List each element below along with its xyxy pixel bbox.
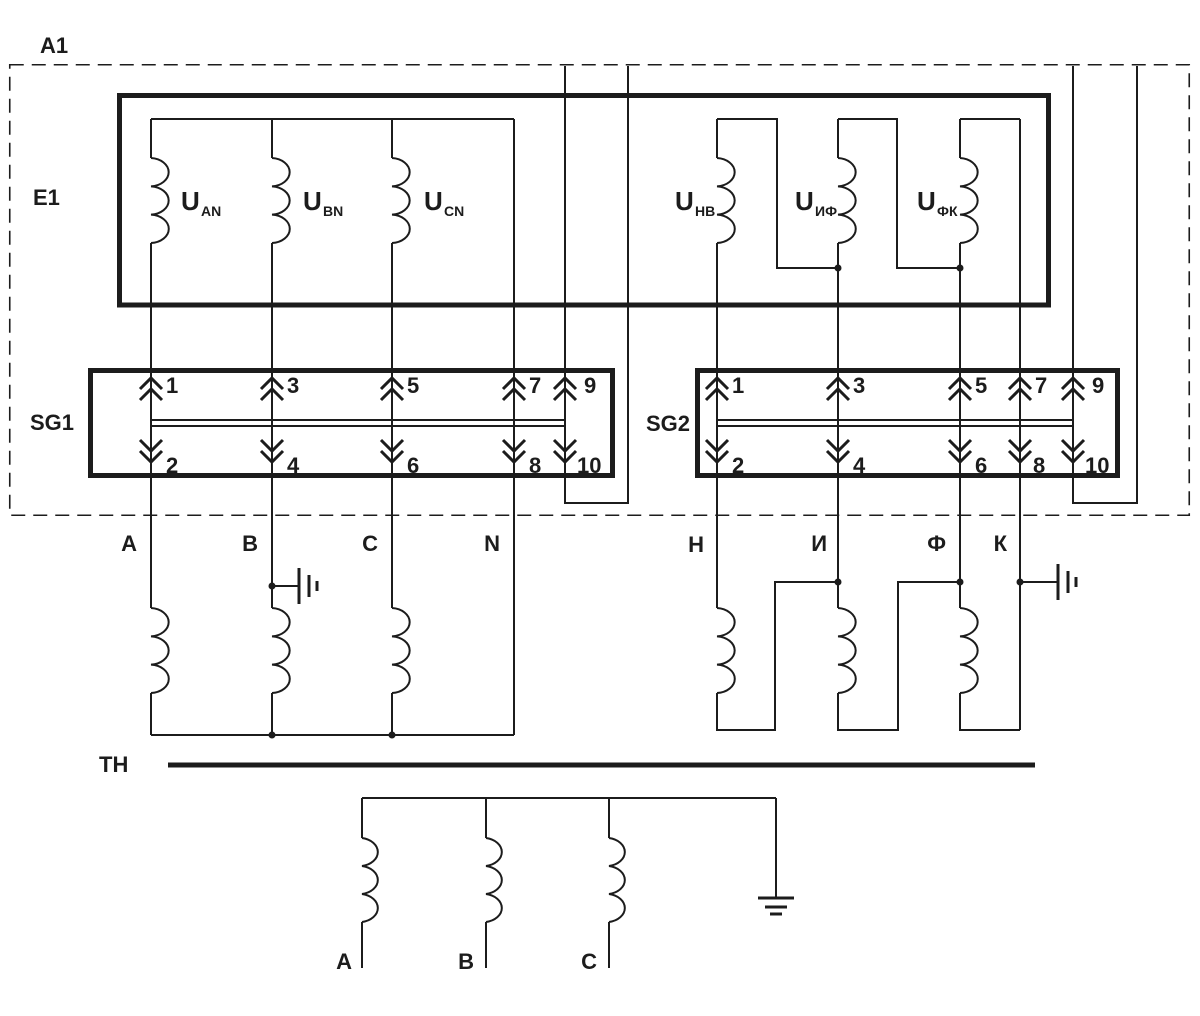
junction-dot (957, 579, 964, 586)
winding-label: U (181, 186, 200, 216)
ground-icon (299, 568, 317, 604)
winding-label-sub: BN (323, 203, 343, 219)
terminal-number: 7 (1035, 373, 1047, 398)
terminal-number: 8 (529, 453, 541, 478)
winding-coil (838, 158, 856, 243)
e1-right-bank (717, 119, 1020, 730)
junction-dot (389, 732, 396, 739)
wire (838, 119, 960, 268)
winding-label-sub: CN (444, 203, 464, 219)
terminal-number: 7 (529, 373, 541, 398)
phase-label: В (458, 949, 474, 974)
terminal-number: 10 (1085, 453, 1109, 478)
winding-coil (272, 158, 290, 243)
terminal-number: 10 (577, 453, 601, 478)
schematic-canvas: A1 E1 U AN U BN U CN (0, 0, 1200, 1016)
winding-coil (392, 158, 410, 243)
wire (838, 582, 960, 730)
terminal-number: 1 (732, 373, 744, 398)
winding-label-sub: ФК (937, 203, 958, 219)
phase-label: A (121, 531, 137, 556)
terminal-number: 4 (853, 453, 866, 478)
ground-icon (758, 898, 794, 914)
winding-coil (609, 838, 625, 922)
winding-coil (272, 608, 290, 693)
winding-label: U (675, 186, 694, 216)
winding-label: U (917, 186, 936, 216)
terminal-number: 5 (407, 373, 419, 398)
bus-labels: A B C N Н И Ф К (121, 531, 1007, 557)
junction-dot (1017, 579, 1024, 586)
terminal-number: 9 (1092, 373, 1104, 398)
terminal-number: 8 (1033, 453, 1045, 478)
winding-label: U (424, 186, 443, 216)
terminal-number: 6 (407, 453, 419, 478)
wire (717, 582, 838, 730)
junction-dot (957, 265, 964, 272)
e1-left-winding-labels: U AN U BN U CN (181, 186, 464, 219)
sg2-label: SG2 (646, 411, 690, 436)
wire (960, 693, 1020, 730)
terminal-number: 4 (287, 453, 300, 478)
phase-label: N (484, 531, 500, 556)
winding-coil (717, 158, 735, 243)
lower-left-windings (151, 568, 514, 739)
junction-dot (835, 265, 842, 272)
winding-label-sub: НВ (695, 203, 715, 219)
a1-dashed-boundary (10, 65, 1190, 516)
winding-coil (960, 158, 978, 243)
winding-coil (486, 838, 502, 922)
terminal-number: 3 (853, 373, 865, 398)
junction-dot (269, 583, 276, 590)
phase-label: И (811, 531, 827, 556)
junction-dot (835, 579, 842, 586)
phase-label: Ф (927, 531, 946, 556)
e1-box (120, 96, 1049, 306)
wire (1073, 66, 1137, 503)
ground-icon (1058, 564, 1076, 600)
phase-label: А (336, 949, 352, 974)
winding-label: U (795, 186, 814, 216)
schematic-page: A1 E1 U AN U BN U CN (0, 0, 1200, 1016)
junction-dot (269, 732, 276, 739)
a1-label: A1 (40, 33, 68, 58)
terminal-number: 1 (166, 373, 178, 398)
winding-coil (838, 608, 856, 693)
terminal-number: 5 (975, 373, 987, 398)
terminal-number: 2 (166, 453, 178, 478)
winding-coil (151, 158, 169, 243)
phase-label: К (994, 531, 1008, 556)
sg1-label: SG1 (30, 410, 74, 435)
winding-coil (362, 838, 378, 922)
sg2-box (698, 371, 1118, 476)
phase-label: С (581, 949, 597, 974)
tn-label: ТН (99, 752, 128, 777)
phase-label: B (242, 531, 258, 556)
winding-coil (151, 608, 169, 693)
tn-section: ТН А В С (99, 752, 1035, 974)
winding-label-sub: ИФ (815, 203, 837, 219)
winding-coil (717, 608, 735, 693)
wire (717, 119, 838, 268)
sg1-strip (151, 420, 565, 426)
terminal-number: 3 (287, 373, 299, 398)
wire (565, 66, 628, 503)
winding-label: U (303, 186, 322, 216)
phase-label: C (362, 531, 378, 556)
lower-right-windings (717, 564, 1076, 730)
measurement-loops (565, 66, 1137, 503)
terminal-number: 2 (732, 453, 744, 478)
terminal-number: 6 (975, 453, 987, 478)
e1-label: E1 (33, 185, 60, 210)
terminal-number: 9 (584, 373, 596, 398)
phase-label: Н (688, 532, 704, 557)
winding-label-sub: AN (201, 203, 221, 219)
winding-coil (392, 608, 410, 693)
winding-coil (960, 608, 978, 693)
